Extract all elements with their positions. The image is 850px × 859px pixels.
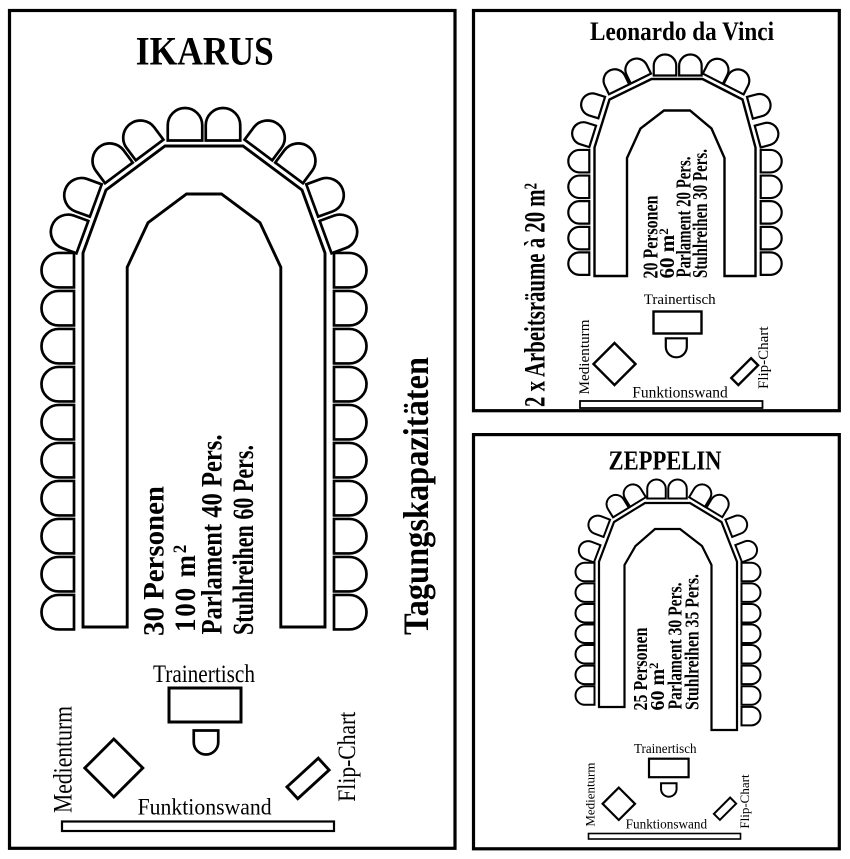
svg-text:Trainertisch: Trainertisch [634, 741, 697, 756]
svg-text:2 x Arbeitsräume à 20 m2: 2 x Arbeitsräume à 20 m2 [518, 183, 551, 407]
svg-text:Stuhlreihen 30 Pers.: Stuhlreihen 30 Pers. [688, 149, 712, 278]
svg-text:Parlament 40 Pers.: Parlament 40 Pers. [196, 435, 228, 635]
svg-text:Trainertisch: Trainertisch [153, 661, 255, 688]
svg-text:30 Personen: 30 Personen [138, 486, 170, 636]
svg-text:Flip-Chart: Flip-Chart [756, 326, 772, 389]
svg-text:Stuhlreihen 35 Pers.: Stuhlreihen 35 Pers. [682, 574, 704, 710]
svg-text:Medienturm: Medienturm [577, 319, 593, 394]
svg-text:ZEPPELIN: ZEPPELIN [609, 446, 722, 476]
svg-text:Trainertisch: Trainertisch [644, 292, 716, 308]
svg-text:Flip-Chart: Flip-Chart [334, 712, 361, 802]
svg-text:IKARUS: IKARUS [136, 29, 274, 74]
svg-text:Funktionswand: Funktionswand [632, 385, 728, 402]
svg-text:Tagungskapazitäten: Tagungskapazitäten [396, 357, 436, 635]
svg-text:Leonardo da Vinci: Leonardo da Vinci [590, 17, 774, 46]
svg-text:Stuhlreihen 60 Pers.: Stuhlreihen 60 Pers. [228, 445, 260, 635]
svg-text:Flip-Chart: Flip-Chart [737, 774, 752, 829]
svg-text:Medienturm: Medienturm [583, 763, 598, 827]
svg-text:Funktionswand: Funktionswand [626, 816, 708, 831]
svg-text:Medienturm: Medienturm [49, 706, 78, 813]
svg-text:Funktionswand: Funktionswand [138, 794, 272, 820]
